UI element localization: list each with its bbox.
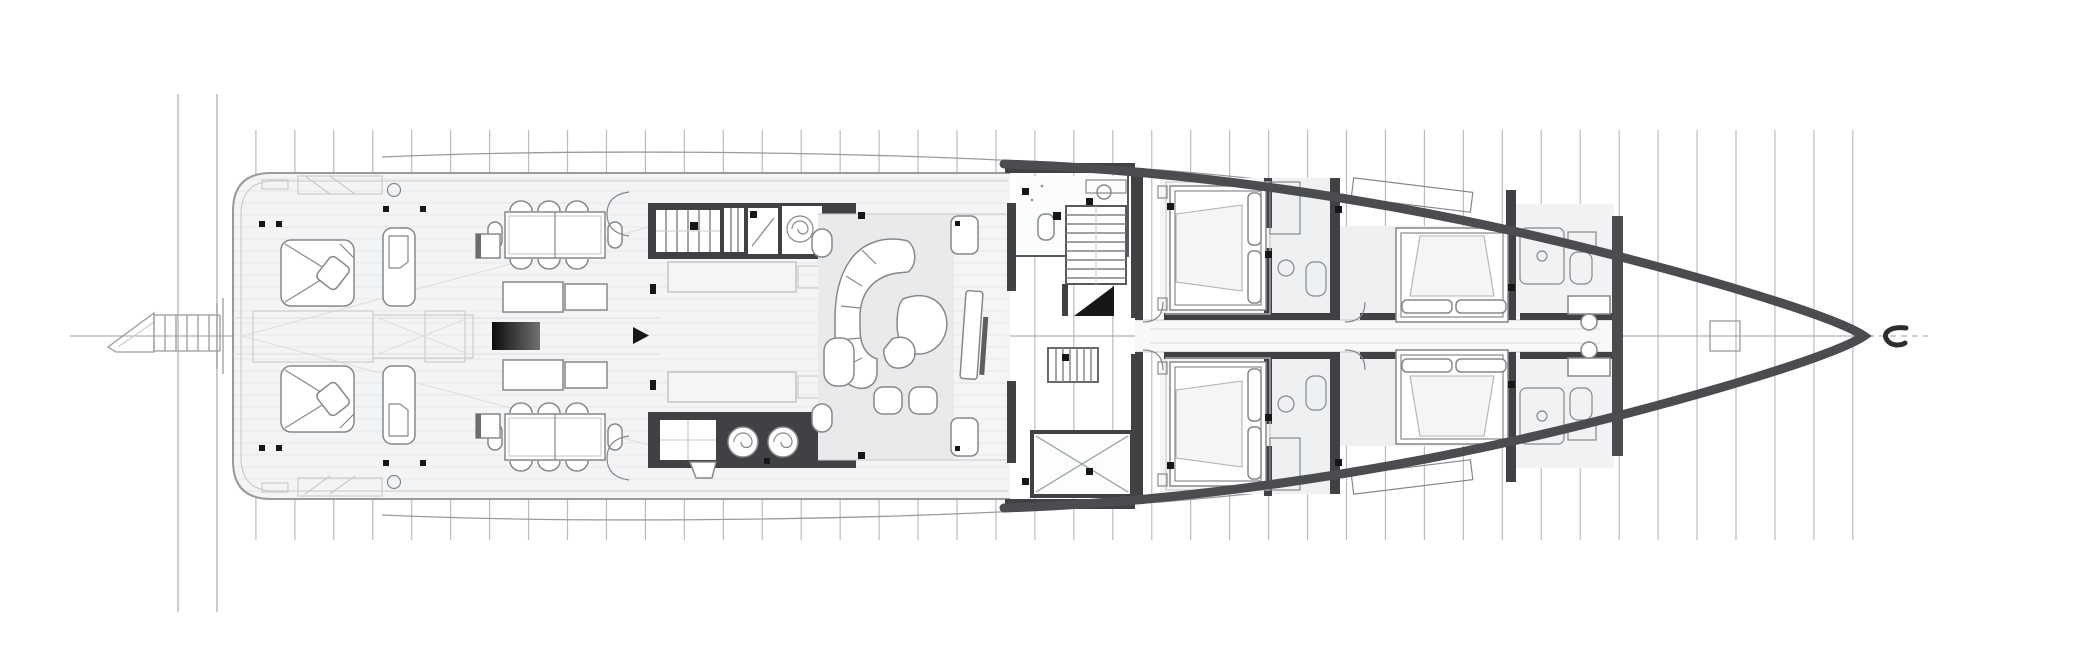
cabinet-starboard-edge xyxy=(476,414,481,438)
vanity-desk-starboard xyxy=(1568,358,1610,376)
corridor-floor xyxy=(1135,320,1613,352)
pillar-mark-8 xyxy=(420,460,426,466)
cabin-mark-3 xyxy=(1508,284,1515,291)
cabin-mark-5 xyxy=(1167,203,1174,210)
cabin-mark-6 xyxy=(1167,462,1174,469)
pillar-mark-3 xyxy=(259,445,265,451)
lobby-mark-5 xyxy=(1086,468,1093,475)
pillar-mark-2 xyxy=(276,221,282,227)
cabinet-port-edge xyxy=(476,234,481,258)
pillar-mark-5 xyxy=(383,206,389,212)
day-head-speck-3 xyxy=(1041,185,1044,188)
day-head-wc xyxy=(1038,214,1054,240)
pillar-mark-1 xyxy=(259,221,265,227)
bed-aft-port-pillow-1 xyxy=(1248,193,1261,245)
bed-aft-starboard-pillow-1 xyxy=(1248,369,1261,421)
corridor-wall-t1 xyxy=(1135,313,1143,320)
yacht-deck-plan-svg xyxy=(0,0,2097,672)
sideboard-port xyxy=(503,282,563,312)
dining-chairs-starboard-top xyxy=(510,403,588,413)
lounge-chair-starboard xyxy=(383,366,415,444)
bed-aft-starboard-pillow-2 xyxy=(1248,427,1261,479)
guest-cabins xyxy=(1135,178,1614,496)
cabin-mark-8 xyxy=(1335,459,1342,466)
bed-aft-port-duvet xyxy=(1176,205,1242,291)
bed-fwd-port-duvet xyxy=(1410,236,1494,296)
cabin-mark-2 xyxy=(1265,414,1272,421)
bed-fwd-port-pillow-1 xyxy=(1402,300,1452,313)
galley-pillar-port xyxy=(650,284,656,294)
salon-chair-port xyxy=(812,229,832,257)
under-stair-void xyxy=(1074,286,1114,316)
vanity-stool-port xyxy=(1581,314,1597,330)
dining-chairs-port-top xyxy=(510,201,588,211)
pillar-mark-7 xyxy=(383,460,389,466)
lobby-mark-4 xyxy=(1022,478,1029,485)
day-head-sink xyxy=(1097,185,1111,199)
bed-aft-port-pillow-2 xyxy=(1248,251,1261,303)
lobby-mark-3 xyxy=(1086,198,1093,205)
burner-2 xyxy=(768,427,798,457)
cabin-mark-1 xyxy=(1265,251,1272,258)
cabin-mark-4 xyxy=(1508,381,1515,388)
stair-side-wall xyxy=(1062,284,1068,316)
vanity-stool-starboard xyxy=(1581,342,1597,358)
deck-plan-canvas xyxy=(0,0,2097,672)
side-table-port-mark xyxy=(955,221,960,226)
pouf-2 xyxy=(909,387,937,414)
lobby-mark-2 xyxy=(1022,188,1029,195)
gangway-outline xyxy=(108,313,154,352)
dining-chairs-port-bottom xyxy=(510,259,588,269)
salon-mullion-starboard xyxy=(858,452,865,459)
salon-lobby-wall-2 xyxy=(1007,381,1016,463)
bed-fwd-port-pillow-2 xyxy=(1456,300,1506,313)
burner-mark xyxy=(764,458,770,464)
day-head-speck-2 xyxy=(1031,199,1034,202)
pillar-mark-4 xyxy=(276,445,282,451)
side-table-starboard-mark xyxy=(955,446,960,451)
pillar-mark-6 xyxy=(420,206,426,212)
cabin-mark-7 xyxy=(1335,206,1342,213)
lobby-mark-1 xyxy=(1053,212,1061,220)
galley-step-locker xyxy=(724,208,744,252)
salon-chair-starboard xyxy=(812,404,832,432)
dining-chairs-starboard-bottom xyxy=(510,461,588,471)
lounge-chair-port xyxy=(383,228,415,306)
galley-pillar-starboard xyxy=(650,380,656,390)
bed-fwd-starboard-pillow-1 xyxy=(1402,359,1452,372)
salon-lobby-wall-1 xyxy=(1007,203,1016,291)
bed-aft-starboard-duvet xyxy=(1176,381,1242,467)
galley-island-starboard xyxy=(668,372,796,402)
lobby-cabin-wall-1 xyxy=(1131,168,1143,318)
salon-mullion-port xyxy=(858,212,865,219)
ladder-rungs xyxy=(154,315,220,351)
salon xyxy=(812,212,1006,460)
bed-fwd-starboard-duvet xyxy=(1410,376,1494,436)
sideboard-starboard xyxy=(503,360,563,390)
galley-door-box-mark xyxy=(750,211,757,218)
bed-fwd-starboard-pillow-2 xyxy=(1456,359,1506,372)
vanity-desk-port xyxy=(1568,296,1610,314)
salon-chaise xyxy=(824,338,854,386)
corridor-wall-b1 xyxy=(1135,352,1143,359)
pouf-1 xyxy=(874,387,902,414)
collision-bulkhead xyxy=(1612,216,1623,456)
burner-1 xyxy=(728,427,758,457)
sideboard-starboard-2 xyxy=(565,362,607,388)
galley-stairs-mark xyxy=(690,222,698,230)
sideboard-port-2 xyxy=(565,284,607,310)
service-stair-mark xyxy=(1062,354,1069,361)
galley-island-port xyxy=(668,262,796,292)
media-console xyxy=(492,322,540,350)
